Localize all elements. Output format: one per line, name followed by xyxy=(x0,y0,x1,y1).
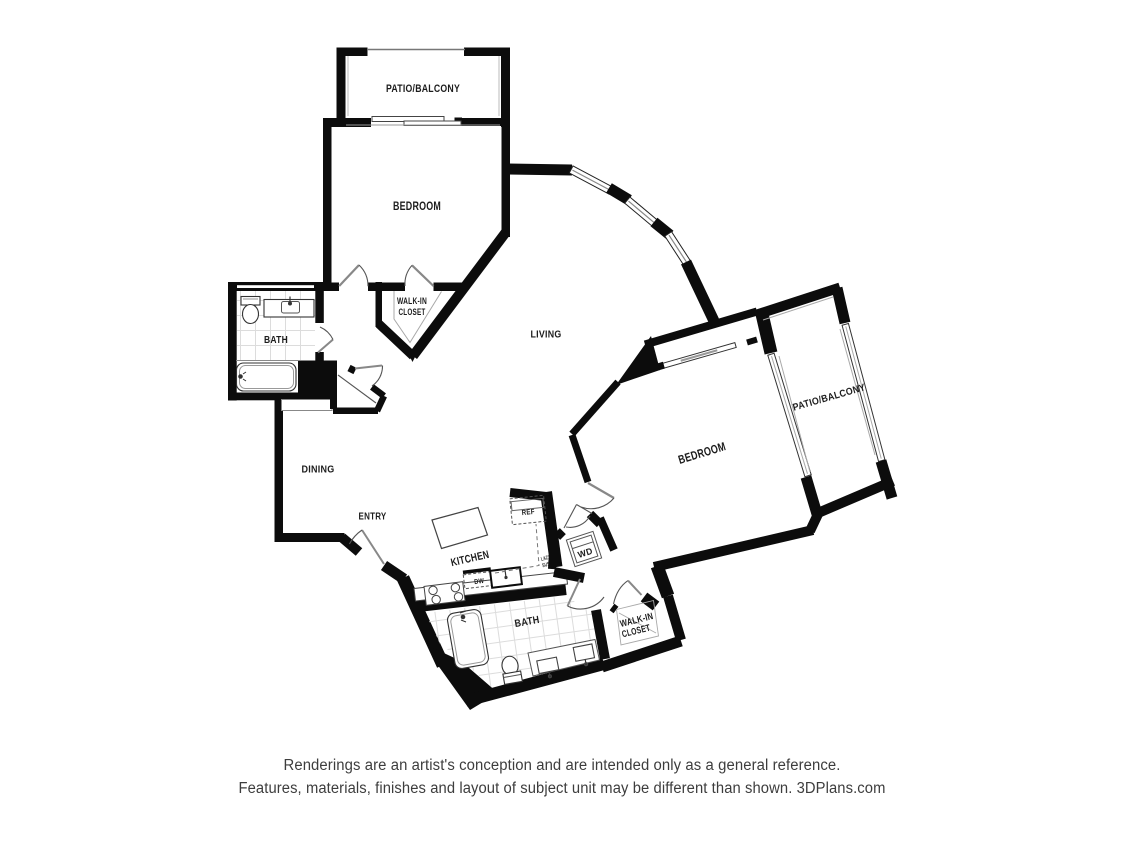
svg-text:ENTRY: ENTRY xyxy=(359,511,387,523)
svg-text:CLOSET: CLOSET xyxy=(399,307,426,318)
svg-text:BATH: BATH xyxy=(264,335,288,346)
svg-text:PATIO/BALCONY: PATIO/BALCONY xyxy=(386,83,460,95)
svg-text:DINING: DINING xyxy=(302,464,335,476)
svg-text:DW: DW xyxy=(474,578,485,586)
svg-text:WALK-IN: WALK-IN xyxy=(397,296,427,307)
svg-text:LIVING: LIVING xyxy=(531,329,562,341)
svg-text:BEDROOM: BEDROOM xyxy=(393,199,441,213)
svg-text:REF: REF xyxy=(521,507,535,517)
svg-text:Features, materials, finishes: Features, materials, finishes and layout… xyxy=(239,780,886,797)
svg-text:Renderings are an artist's con: Renderings are an artist's conception an… xyxy=(284,757,841,774)
